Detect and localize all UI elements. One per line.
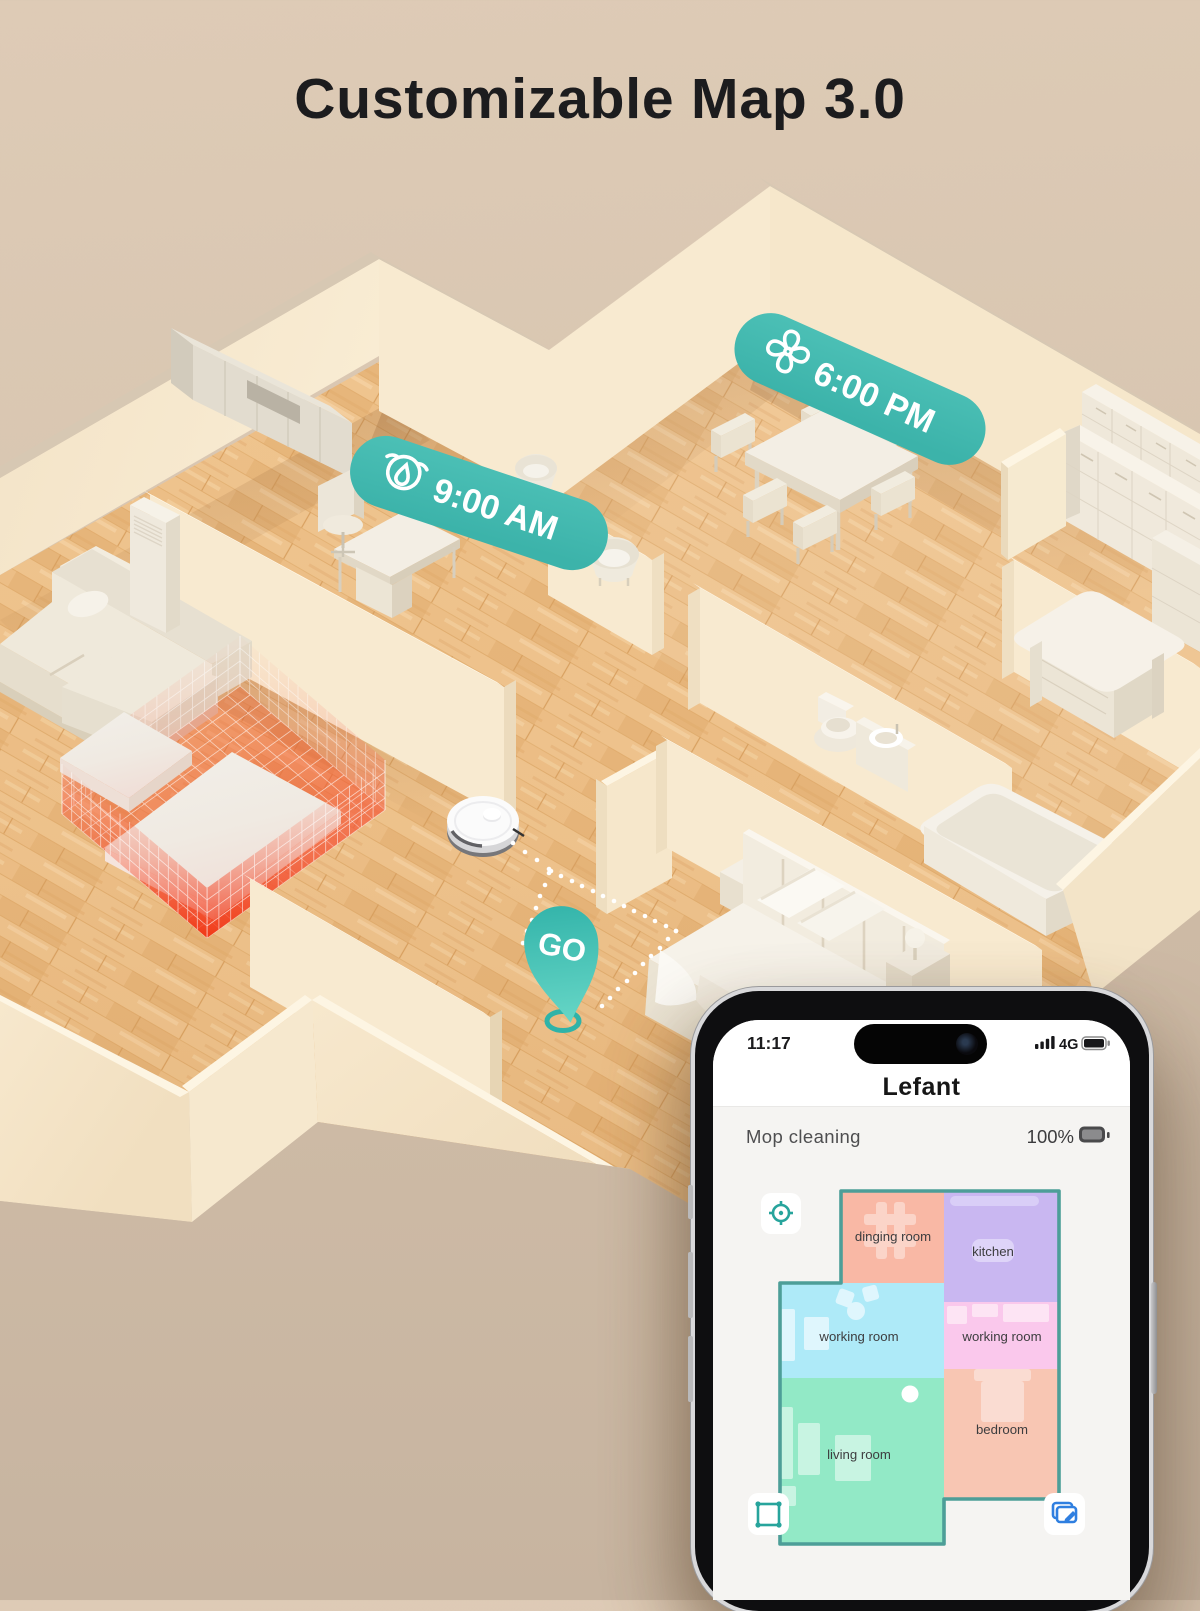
svg-text:bedroom: bedroom — [976, 1422, 1028, 1437]
svg-text:working room: working room — [961, 1329, 1041, 1344]
svg-text:living room: living room — [827, 1447, 891, 1462]
svg-text:dinging room: dinging room — [855, 1229, 931, 1244]
svg-text:kitchen: kitchen — [972, 1244, 1014, 1259]
svg-text:working room: working room — [818, 1329, 898, 1344]
